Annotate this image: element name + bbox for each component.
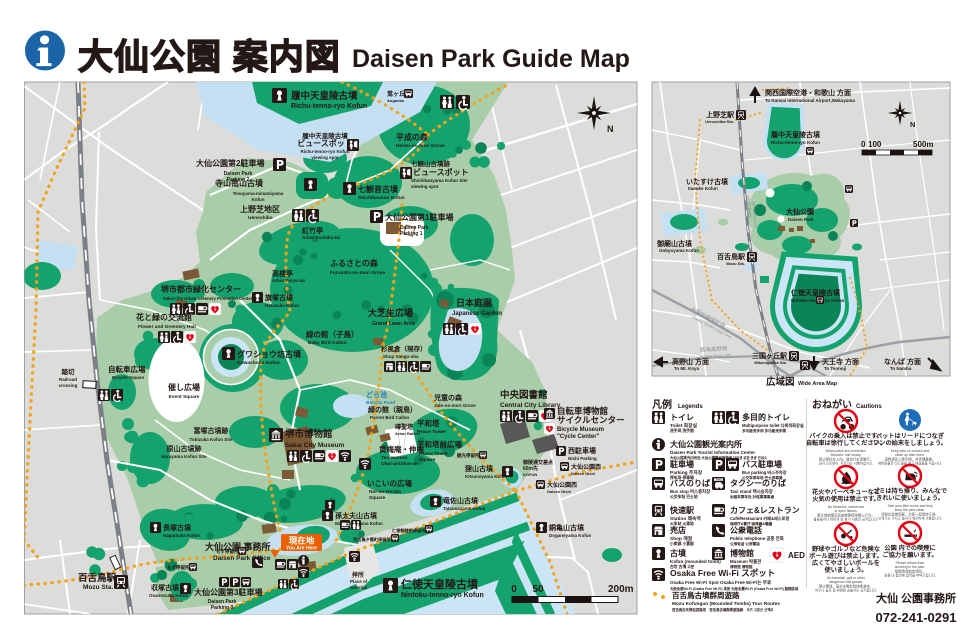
svg-text:古墳: 古墳 (670, 548, 686, 558)
svg-text:天王寺 方面: 天王寺 方面 (822, 357, 859, 366)
svg-text:西駐車場: 西駐車場 (568, 446, 596, 455)
svg-text:Tea Houses: Tea Houses (381, 455, 408, 461)
svg-text:七観山古墳跡: 七観山古墳跡 (411, 159, 451, 168)
svg-text:AED: AED (788, 551, 805, 560)
svg-text:Cautions: Cautions (856, 404, 882, 410)
svg-text:ボール遊びは禁止します。: ボール遊びは禁止します。 (809, 552, 883, 560)
svg-text:野球やゴルフなど危険な: 野球やゴルフなど危険な (812, 545, 880, 553)
svg-text:自転車広場: 自転車広場 (108, 364, 146, 374)
svg-text:仁徳天皇陵古墳: 仁徳天皇陵古墳 (401, 577, 478, 591)
svg-text:大仙公園西: 大仙公園西 (571, 463, 601, 471)
svg-text:百舌鳥古墳群周遊路: 百舌鳥古墳群周遊路 (672, 590, 740, 600)
svg-text:タクシーのりば: タクシーのりば (730, 478, 786, 488)
svg-text:0: 0 (511, 584, 517, 595)
svg-text:狸山古墳: 狸山古墳 (464, 464, 494, 473)
svg-text:バスのりば: バスのりば (670, 478, 710, 488)
svg-text:Nagatsuka Kofun: Nagatsuka Kofun (163, 533, 200, 538)
svg-text:Shichikanyama Kofun Site: Shichikanyama Kofun Site (411, 178, 468, 183)
svg-text:広くてやさしいボールを: 広くてやさしいボールを (812, 559, 880, 567)
svg-text:収塚古墳: 収塚古墳 (151, 583, 180, 592)
svg-text:大仙 公園事務所: 大仙 公園事務所 (876, 591, 956, 605)
svg-text:Japanese Garden: Japanese Garden (452, 311, 502, 317)
svg-text:いたすけ古墳: いたすけ古墳 (686, 177, 729, 186)
svg-text:Multipurpose toilet 다목적화장실: Multipurpose toilet 다목적화장실 (742, 422, 804, 429)
svg-text:Railroad: Railroad (59, 377, 77, 382)
svg-text:Shop Sangu-sha: Shop Sangu-sha (383, 354, 419, 359)
svg-text:Obai-an/Shin-an: Obai-an/Shin-an (381, 461, 418, 467)
svg-text:Itasuke Kofun: Itasuke Kofun (688, 186, 718, 191)
svg-text:Osaka Free Wi-Fi Spot Osaka: Osaka Free Wi-Fi Spot Osaka Free Wi-Fi는 … (670, 579, 772, 586)
svg-text:N: N (910, 120, 915, 129)
svg-text:Gobyoyama Kofun: Gobyoyama Kofun (659, 248, 699, 253)
svg-text:Kitsuneyama Kofun: Kitsuneyama Kofun (465, 474, 508, 479)
svg-text:ゴミは持ち帰り、みんなで: ゴミは持ち帰り、みんなで (873, 487, 947, 495)
svg-text:You Are Here: You Are Here (286, 546, 317, 552)
svg-text:Baby Bird Callon: Baby Bird Callon (308, 340, 347, 346)
svg-text:60m先: 60m先 (523, 465, 538, 472)
svg-text:worship: worship (349, 585, 368, 590)
svg-text:もず停留所: もず停留所 (167, 564, 190, 571)
svg-text:観光停留所: 観光停留所 (457, 452, 480, 459)
svg-text:磚聖塔: 磚聖塔 (394, 423, 414, 431)
svg-text:黄梅庵・伸庵: 黄梅庵・伸庵 (379, 444, 424, 454)
svg-text:Station 쾌속역: Station 쾌속역 (670, 515, 701, 522)
svg-text:Nintoku-tenno-ryo Kofun: Nintoku-tenno-ryo Kofun (401, 592, 484, 599)
svg-text:Heisei-no-mori Grove: Heisei-no-mori Grove (396, 143, 445, 149)
svg-text:Doganeyama Kofun: Doganeyama Kofun (549, 533, 592, 538)
svg-text:Peace Tower: Peace Tower (417, 429, 446, 435)
svg-text:多目的トイレ: 多目的トイレ (742, 412, 790, 422)
svg-text:Arbor Kochiku-tai: Arbor Kochiku-tai (302, 235, 340, 240)
svg-text:Central City Library: Central City Library (500, 402, 561, 409)
svg-text:仁徳御陵前停留所: 仁徳御陵前停留所 (392, 527, 426, 534)
svg-text:Bicycle Square: Bicycle Square (112, 375, 145, 380)
svg-text:緑の館（子鳥）: 緑の館（子鳥） (306, 329, 359, 339)
svg-text:上野芝地区: 上野芝地区 (240, 204, 280, 214)
svg-text:Tesuyama-minamiyama: Tesuyama-minamiyama (233, 191, 284, 196)
svg-text:公衆電話: 公衆電話 (730, 525, 762, 535)
svg-text:銅亀山古墳: 銅亀山古墳 (549, 523, 585, 532)
svg-text:履中天皇陵古墳: 履中天皇陵古墳 (770, 130, 821, 139)
svg-text:大芝生広場: 大芝生広場 (368, 307, 413, 318)
svg-text:Bus parking 버스주차장: Bus parking 버스주차장 (742, 469, 787, 476)
svg-text:上野芝駅: 上野芝駅 (706, 110, 735, 119)
svg-text:공원 내 흡연에 협력을 부탁드립니다.: 공원 내 흡연에 협력을 부탁드립니다. (884, 573, 936, 578)
svg-text:御廟山古墳: 御廟山古墳 (656, 239, 693, 248)
svg-text:Tobizuka Kofun Site: Tobizuka Kofun Site (190, 437, 233, 442)
svg-text:もず停留所: もず停留所 (216, 548, 239, 555)
svg-text:中央図書館: 中央図書館 (500, 389, 548, 401)
svg-text:Legends: Legends (678, 404, 703, 410)
svg-text:Uenoshiba Sta.: Uenoshiba Sta. (705, 119, 734, 124)
svg-text:七観音古墳: 七観音古墳 (358, 184, 398, 194)
svg-text:旗塚古墳: 旗塚古墳 (265, 293, 294, 302)
svg-text:Sakai City Museum: Sakai City Museum (285, 442, 344, 449)
svg-text:viewing spot: viewing spot (311, 155, 339, 160)
svg-text:Uenoshiba: Uenoshiba (248, 215, 273, 221)
svg-text:寺山南山古墳: 寺山南山古墳 (215, 178, 263, 188)
svg-text:児童の森: 児童の森 (433, 393, 463, 402)
svg-text:야구나 골프 등 위험한 공놀이는 금지합니다.: 야구나 골프 등 위험한 공놀이는 금지합니다. (815, 588, 877, 593)
svg-text:"Cycle Center": "Cycle Center" (557, 434, 600, 440)
svg-text:三国ヶ丘駅: 三国ヶ丘駅 (752, 351, 788, 360)
svg-text:大仙公園 案内図: 大仙公園 案内図 (78, 38, 341, 77)
svg-text:Event Square: Event Square (169, 394, 200, 400)
svg-text:多功能洗手间 多功能洗手間: 多功能洗手间 多功能洗手間 (742, 428, 787, 433)
svg-text:履中天皇陵古墳: 履中天皇陵古墳 (290, 90, 358, 102)
svg-text:ふるさとの森: ふるさとの森 (330, 258, 379, 268)
svg-text:堺市都市緑化センター: 堺市都市緑化センター (161, 284, 241, 294)
svg-text:大仙公園: 大仙公園 (786, 207, 814, 216)
svg-text:To Mt. Koya: To Mt. Koya (674, 366, 700, 371)
svg-text:出租车乘车处 計程車乘車處: 出租车乘车处 計程車乘車處 (730, 494, 775, 499)
svg-text:長塚古墳: 長塚古墳 (163, 523, 192, 532)
svg-text:小卖部 小賣部: 小卖部 小賣部 (669, 541, 694, 546)
svg-text:富塚古墳跡: 富塚古墳跡 (194, 426, 229, 435)
svg-text:Sakai City Urban Greenery Prom: Sakai City Urban Greenery Promotion Cent… (163, 296, 253, 301)
svg-text:フンの始末をしましょう。: フンの始末をしましょう。 (873, 439, 947, 447)
svg-text:原山古墳跡: 原山古墳跡 (167, 444, 202, 453)
svg-text:百舌鳥駅: 百舌鳥駅 (78, 572, 117, 584)
svg-text:To Namba: To Namba (890, 366, 912, 371)
svg-text:凡例: 凡例 (652, 398, 672, 411)
svg-text:バイクの乗入は禁止です。: バイクの乗入は禁止です。 (809, 432, 883, 440)
svg-text:Noi-no-Hiroba: Noi-no-Hiroba (369, 489, 401, 495)
svg-text:Daisen Park: Daisen Park (788, 217, 814, 222)
svg-text:Mikunigaoka Sta.: Mikunigaoka Sta. (754, 360, 787, 365)
svg-text:ビュースポット: ビュースポット (297, 138, 353, 148)
svg-text:売店: 売店 (670, 525, 686, 535)
svg-text:072-241-0291: 072-241-0291 (876, 610, 957, 625)
svg-text:Parking 3: Parking 3 (211, 605, 234, 611)
svg-text:ペットはリードにつなぎ: ペットはリードにつなぎ (876, 432, 945, 440)
svg-text:いこいの広場: いこいの広場 (367, 478, 412, 488)
svg-text:大仙公園第1駐車場: 大仙公園第1駐車場 (385, 212, 453, 222)
svg-text:公用电话 公用電話: 公用电话 公用電話 (730, 541, 760, 546)
svg-text:500m: 500m (913, 140, 933, 149)
svg-text:竜佐山古墳: 竜佐山古墳 (443, 496, 479, 505)
svg-text:大仙公園第3駐車場: 大仙公園第3駐車場 (194, 587, 262, 597)
svg-text:ご協力を願います。: ご協力を願います。 (882, 551, 937, 559)
svg-text:サイクルセンター: サイクルセンター (557, 415, 625, 425)
svg-text:Jido-no-mori Grove: Jido-no-mori Grove (434, 403, 476, 408)
svg-text:駐車場: 駐車場 (670, 459, 694, 469)
svg-text:crossing: crossing (59, 383, 78, 388)
svg-text:Osaka Free Wi-Fi スポット: Osaka Free Wi-Fi スポット (670, 568, 775, 578)
svg-text:トイレ: トイレ (670, 413, 694, 422)
svg-text:Flower and Greenery Hall: Flower and Greenery Hall (138, 324, 196, 330)
svg-text:百舌鳥夕雲町停留所: 百舌鳥夕雲町停留所 (353, 536, 392, 543)
svg-text:きれいに使いましょう。: きれいに使いましょう。 (876, 494, 944, 502)
svg-text:Hatazuka Kofun: Hatazuka Kofun (265, 303, 299, 308)
svg-text:Richu-tenno-ryo Kofun: Richu-tenno-ryo Kofun (291, 103, 367, 110)
svg-text:Augaoka: Augaoka (387, 98, 405, 103)
svg-text:Parking 주차장: Parking 주차장 (670, 469, 703, 476)
svg-text:洗手间 洗手間: 洗手间 洗手間 (670, 428, 694, 433)
svg-text:百舌鳥古坟群巡游路线 百舌鳥古墳群周遊路線 모즈 고분군 산: 百舌鳥古坟群巡游路线 百舌鳥古墳群周遊路線 모즈 고분군 산책로 (672, 607, 774, 612)
svg-text:To Kansai International Airpor: To Kansai International Airport,Wakayama (765, 98, 855, 103)
svg-text:大仙公園第2駐車場: 大仙公園第2駐車場 (196, 158, 264, 168)
svg-text:50: 50 (532, 584, 544, 595)
svg-text:御陵通交差点: 御陵通交差点 (522, 459, 553, 466)
svg-text:関西国際空港・和歌山 方面: 関西国際空港・和歌山 方面 (765, 88, 851, 97)
svg-text:Mozu Sta.: Mozu Sta. (726, 261, 745, 266)
svg-text:踏切: 踏切 (62, 367, 76, 376)
svg-text:広域図: 広域図 (766, 376, 795, 388)
svg-text:博物館: 博物館 (730, 548, 754, 558)
svg-text:Bus stop 버스중차장: Bus stop 버스중차장 (670, 488, 710, 495)
svg-text:Daisen Nishi: Daisen Nishi (547, 489, 571, 494)
svg-text:公園 内での喫煙に: 公園 内での喫煙に (884, 544, 935, 552)
svg-text:Bonsita Pond: Bonsita Pond (366, 400, 395, 405)
svg-text:紅竹亭: 紅竹亭 (302, 226, 323, 235)
svg-text:200m: 200m (608, 584, 634, 595)
svg-text:日本庭園: 日本庭園 (456, 297, 492, 308)
svg-text:催し広場: 催し広場 (168, 382, 200, 392)
svg-text:大仙公園西: 大仙公園西 (547, 481, 577, 489)
svg-text:Public telephone 공중 전화: Public telephone 공중 전화 (730, 535, 784, 542)
svg-text:大仙公園観光案内所: 大仙公園観光案内所 (670, 439, 742, 449)
svg-text:100: 100 (868, 140, 882, 149)
svg-text:Nishi Parking: Nishi Parking (568, 456, 597, 461)
svg-text:Nintoku-tenno-ryo Kofun: Nintoku-tenno-ryo Kofun (791, 298, 844, 303)
svg-text:仁徳天皇陵古墳: 仁徳天皇陵古墳 (791, 288, 841, 297)
svg-text:Taxi stand 택시승차장: Taxi stand 택시승차장 (730, 488, 773, 495)
svg-text:Richu-tenno-ryo Kofun: Richu-tenno-ryo Kofun (771, 140, 820, 145)
svg-text:Shop 매점: Shop 매점 (670, 535, 692, 542)
svg-text:花と緑の交流館: 花と緑の交流館 (136, 312, 192, 322)
svg-text:拝所: 拝所 (352, 571, 364, 579)
svg-text:ビュースポット: ビュースポット (413, 167, 469, 177)
svg-text:花火やバーベキューなど: 花火やバーベキューなど (812, 488, 881, 496)
svg-text:Parent Bird Callon: Parent Bird Callon (370, 415, 410, 420)
svg-text:Grand Lawn Area: Grand Lawn Area (372, 321, 415, 327)
svg-text:Harayama Kofun Site: Harayama Kofun Site (161, 454, 207, 459)
svg-text:カフェ&レストラン: カフェ&レストラン (730, 506, 800, 515)
svg-text:使いましょう。: 使いましょう。 (824, 566, 868, 574)
svg-text:杉風倉（現存）: 杉風倉（現存） (381, 344, 427, 353)
svg-text:Daisen Nishi: Daisen Nishi (571, 471, 595, 476)
svg-text:どら池: どら池 (366, 390, 387, 399)
svg-text:Square: Square (369, 495, 386, 501)
svg-text:グワショウ坊古墳: グワショウ坊古墳 (237, 349, 301, 359)
svg-text:火気の使用は禁止です。: 火気の使用は禁止です。 (812, 495, 879, 503)
svg-text:現在地: 現在地 (289, 536, 315, 546)
svg-text:To Tennoji: To Tennoji (824, 366, 846, 371)
svg-text:鴬ヶ丘: 鴬ヶ丘 (387, 90, 405, 98)
svg-text:Parking 1: Parking 1 (400, 231, 423, 237)
svg-text:緑の館（親鳥）: 緑の館（親鳥） (368, 405, 417, 414)
svg-text:Shichikannon Kofun: Shichikannon Kofun (358, 195, 405, 201)
svg-text:viewing spot: viewing spot (411, 184, 439, 189)
svg-text:快速駅: 快速駅 (670, 505, 695, 515)
svg-text:Wide Area Map: Wide Area Map (798, 381, 838, 387)
svg-text:TAXI: TAXI (716, 478, 722, 482)
svg-text:Museum 박물관: Museum 박물관 (730, 558, 761, 565)
svg-text:쓰레기는 가지고 돌아가 깨끗하게 사용합시다.: 쓰레기는 가지고 돌아가 깨끗하게 사용합시다. (878, 516, 942, 521)
svg-text:なんば 方面: なんば 方面 (884, 357, 921, 366)
svg-text:Mozu Sta.: Mozu Sta. (83, 584, 114, 591)
svg-text:公交车站 巴士站: 公交车站 巴士站 (670, 494, 698, 499)
svg-text:Bicycle Museum: Bicycle Museum (557, 427, 604, 433)
svg-text:0: 0 (861, 140, 866, 149)
svg-text:Daisen Park Tourist Informatio: Daisen Park Tourist Information Center (670, 450, 755, 455)
svg-text:百舌鳥駅: 百舌鳥駅 (717, 252, 746, 261)
svg-text:Square: Square (419, 457, 436, 463)
svg-text:Toilet 화장실: Toilet 화장실 (670, 422, 698, 429)
svg-text:Place of: Place of (350, 579, 368, 584)
svg-text:Richu-tenno-ryo Kofun: Richu-tenno-ryo Kofun (301, 149, 350, 154)
svg-text:KOFUN: KOFUN (523, 472, 537, 477)
svg-text:불꽃놀이나 바비큐 등 화기 사용은 금지입니다.: 불꽃놀이나 바비큐 등 화기 사용은 금지입니다. (814, 517, 879, 522)
svg-text:孫太夫山古墳: 孫太夫山古墳 (335, 511, 378, 520)
svg-text:Daisen Park Guide Map: Daisen Park Guide Map (352, 45, 630, 73)
svg-text:バス駐車場: バス駐車場 (742, 459, 782, 469)
svg-text:Arbor Furyu-tai: Arbor Furyu-tai (272, 278, 305, 283)
svg-text:堺市博物館: 堺市博物館 (285, 428, 333, 440)
svg-text:Kofun: Kofun (252, 197, 265, 202)
svg-text:高野山 方面: 高野山 方面 (672, 357, 709, 366)
svg-text:高楼亭: 高楼亭 (272, 269, 293, 278)
svg-text:Furusato-no-mori Grove: Furusato-no-mori Grove (330, 270, 385, 276)
svg-text:Café/Restaurant 카페&레스토랑: Café/Restaurant 카페&레스토랑 (730, 515, 790, 522)
svg-text:平和塔: 平和塔 (417, 418, 440, 428)
svg-text:Tatsusayama Kofun: Tatsusayama Kofun (443, 506, 486, 511)
svg-text:N: N (607, 124, 614, 134)
svg-text:平成の森: 平成の森 (396, 132, 429, 142)
svg-text:Guwashobo Kofun: Guwashobo Kofun (237, 360, 280, 366)
svg-text:Mozu Kofungun (Mounded Tombs): Mozu Kofungun (Mounded Tombs) Tour Route… (672, 601, 780, 607)
